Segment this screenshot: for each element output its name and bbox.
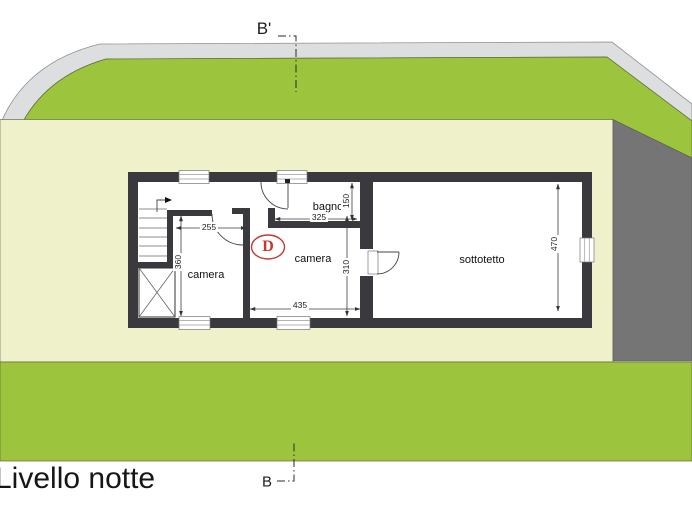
window-right-wall <box>580 238 594 262</box>
section-marker-b: B <box>262 474 272 491</box>
building <box>128 171 594 330</box>
dim-camera-center-width: 435 <box>291 300 309 310</box>
dim-camera-left-width: 255 <box>200 222 218 232</box>
garden-strip-bottom <box>0 362 692 461</box>
room-label-camera-left: camera <box>188 269 225 281</box>
void-x-box <box>139 268 175 317</box>
page-title: Livello notte <box>0 462 155 496</box>
room-label-camera-center: camera <box>295 253 332 265</box>
floor-plan-page: B' B camera camera bagno sottotetto D 25… <box>0 0 692 518</box>
room-label-sottotetto: sottotetto <box>459 254 504 266</box>
dim-camera-left-height: 360 <box>173 253 183 271</box>
dim-sottotetto-height: 470 <box>549 235 559 253</box>
dim-bagno-width: 325 <box>310 212 328 222</box>
neighbor-area <box>613 120 692 362</box>
dim-bagno-height: 150 <box>341 192 351 210</box>
door-type-marker-letter: D <box>262 238 274 256</box>
window-top-left <box>179 171 209 184</box>
dim-camera-center-height: 310 <box>341 258 351 276</box>
section-marker-b-prime: B' <box>257 19 272 39</box>
window-bottom-left <box>179 317 210 330</box>
window-bottom-center <box>277 317 310 330</box>
window-top-center <box>277 171 307 184</box>
